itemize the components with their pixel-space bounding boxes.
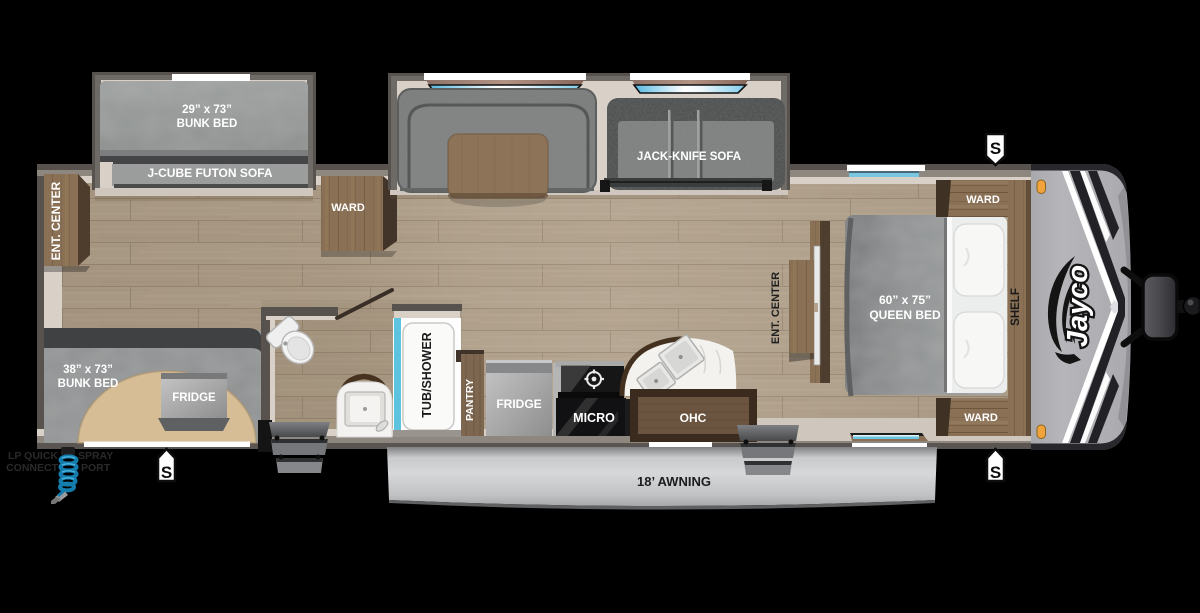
svg-text:S: S [990,139,1001,158]
svg-text:MICRO: MICRO [573,411,615,425]
svg-text:BUNK BED: BUNK BED [58,378,119,390]
svg-text:FRIDGE: FRIDGE [496,397,541,411]
svg-text:WARD: WARD [966,194,1000,206]
svg-text:60” x 75”: 60” x 75” [879,293,931,307]
svg-text:WARD: WARD [964,412,998,424]
svg-text:ENT. CENTER: ENT. CENTER [770,272,782,344]
svg-text:ENT. CENTER: ENT. CENTER [49,181,63,260]
svg-text:SPRAY: SPRAY [78,450,113,462]
svg-text:29” x 73”: 29” x 73” [182,104,232,116]
svg-text:JACK-KNIFE SOFA: JACK-KNIFE SOFA [637,151,741,163]
svg-text:S: S [161,463,172,482]
svg-text:WARD: WARD [331,202,365,214]
svg-text:38” x 73”: 38” x 73” [63,364,113,376]
svg-text:QUEEN BED: QUEEN BED [869,308,941,322]
svg-text:OHC: OHC [680,411,707,425]
svg-text:PORT: PORT [81,462,111,474]
svg-text:FRIDGE: FRIDGE [172,392,216,404]
svg-text:PANTRY: PANTRY [464,379,476,421]
svg-text:TUB/SHOWER: TUB/SHOWER [420,332,434,417]
svg-text:SHELF: SHELF [1010,288,1022,326]
svg-text:LP QUICK: LP QUICK [8,450,58,462]
svg-text:Jayco: Jayco [1062,265,1094,347]
svg-text:S: S [990,463,1001,482]
svg-text:CONNECT: CONNECT [6,462,59,474]
svg-text:J-CUBE FUTON SOFA: J-CUBE FUTON SOFA [147,166,272,180]
svg-text:BUNK BED: BUNK BED [177,118,238,130]
svg-text:18’ AWNING: 18’ AWNING [637,474,711,489]
